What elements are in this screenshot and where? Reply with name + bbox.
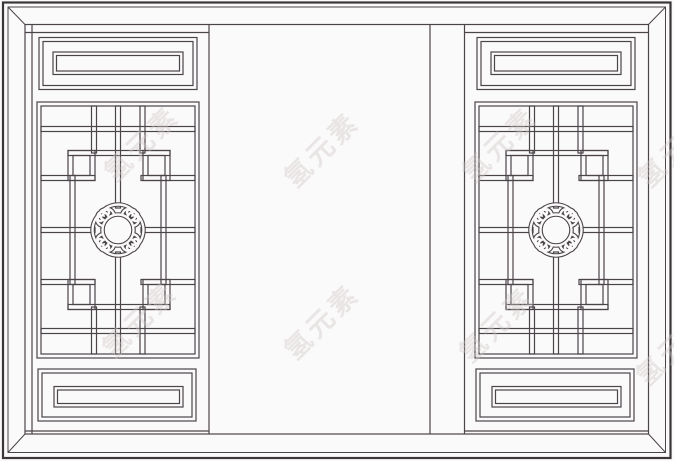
right-sash-panels [475,38,637,422]
chinese-window-line-art: 氢元素 氢元素 氢元素 氢元素 氢元素 氢元素 氢元素 氢元素 [0,0,674,461]
watermark-text: 氢元素 [633,107,674,195]
watermark-text: 氢元素 [279,107,367,195]
watermark-layer: 氢元素 氢元素 氢元素 氢元素 氢元素 氢元素 氢元素 氢元素 [97,101,674,393]
line-work [3,3,671,459]
watermark-text: 氢元素 [279,279,367,367]
frame-corner-miters [8,7,666,453]
illustration-canvas: 氢元素 氢元素 氢元素 氢元素 氢元素 氢元素 氢元素 氢元素 [0,0,674,461]
watermark-text: 氢元素 [454,282,542,370]
